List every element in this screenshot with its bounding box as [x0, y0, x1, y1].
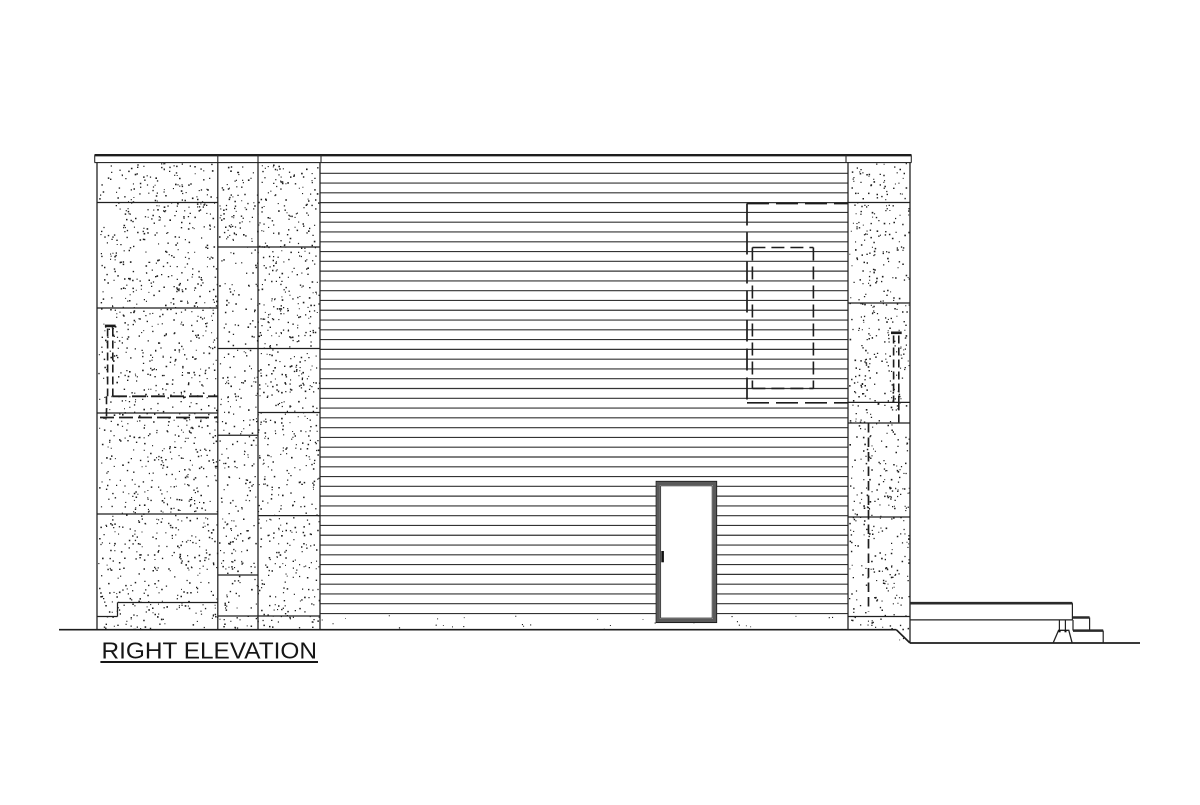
svg-text:RIGHT ELEVATION: RIGHT ELEVATION	[102, 638, 318, 664]
